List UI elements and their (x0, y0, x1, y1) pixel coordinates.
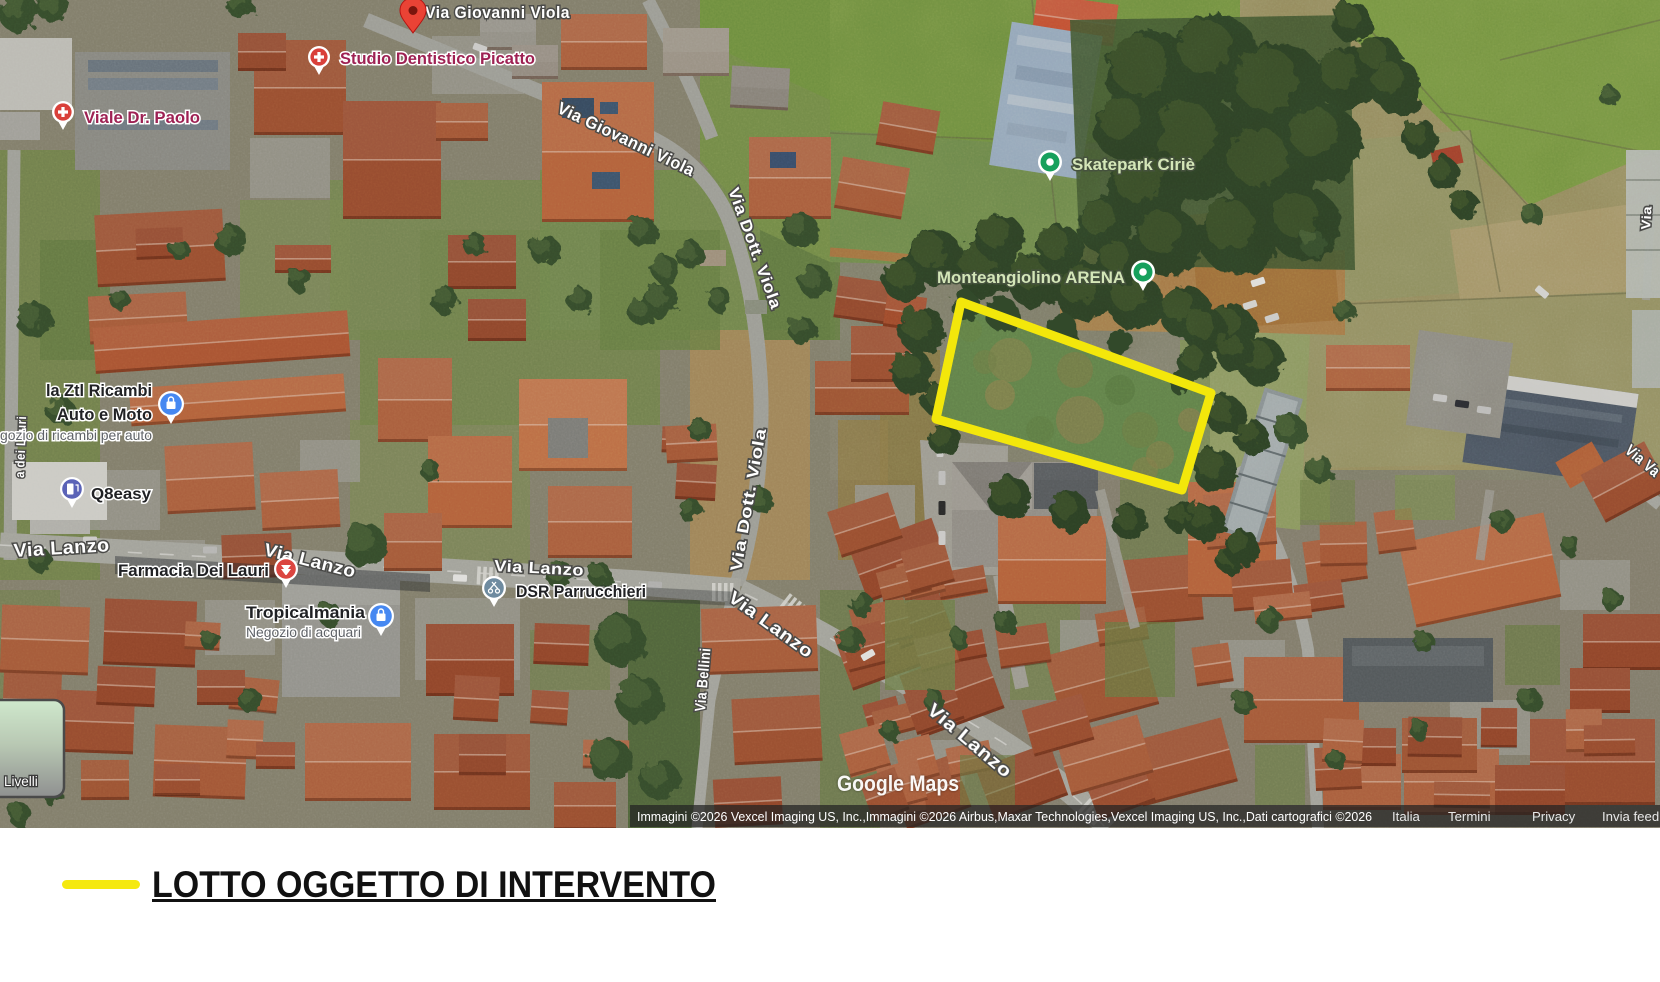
svg-text:Invia feedback su: Invia feedback su (1602, 809, 1660, 824)
svg-text:LOTTO OGGETTO DI INTERVENTO: LOTTO OGGETTO DI INTERVENTO (152, 864, 716, 905)
svg-text:Privacy: Privacy (1532, 809, 1576, 824)
svg-text:Auto e Moto: Auto e Moto (57, 405, 152, 424)
svg-text:a dei Lauri: a dei Lauri (12, 416, 29, 478)
svg-text:Farmacia Dei Lauri: Farmacia Dei Lauri (118, 561, 269, 580)
svg-text:Negozio di acquari: Negozio di acquari (246, 625, 361, 640)
svg-text:Termini: Termini (1448, 809, 1491, 824)
svg-text:Livelli: Livelli (4, 774, 38, 789)
svg-text:Italia: Italia (1392, 809, 1421, 824)
svg-text:la Ztl Ricambi: la Ztl Ricambi (46, 381, 152, 400)
svg-text:Q8easy: Q8easy (91, 486, 151, 503)
svg-text:Monteangiolino ARENA: Monteangiolino ARENA (937, 268, 1125, 287)
svg-text:Viale Dr. Paolo: Viale Dr. Paolo (84, 108, 200, 127)
svg-text:Immagini ©2026 Vexcel Imaging: Immagini ©2026 Vexcel Imaging US, Inc.,I… (637, 809, 1372, 824)
svg-text:Google Maps: Google Maps (837, 771, 959, 796)
svg-text:Tropicalmania: Tropicalmania (246, 603, 366, 622)
svg-text:Via Giovanni Viola: Via Giovanni Viola (425, 3, 570, 22)
svg-text:Via: Via (1638, 205, 1655, 230)
svg-text:Skatepark Ciriè: Skatepark Ciriè (1072, 155, 1195, 174)
svg-text:DSR Parrucchieri: DSR Parrucchieri (516, 582, 646, 601)
svg-text:gozio di ricambi per auto: gozio di ricambi per auto (0, 427, 152, 443)
svg-text:Studio Dentistico Picatto: Studio Dentistico Picatto (340, 49, 535, 68)
